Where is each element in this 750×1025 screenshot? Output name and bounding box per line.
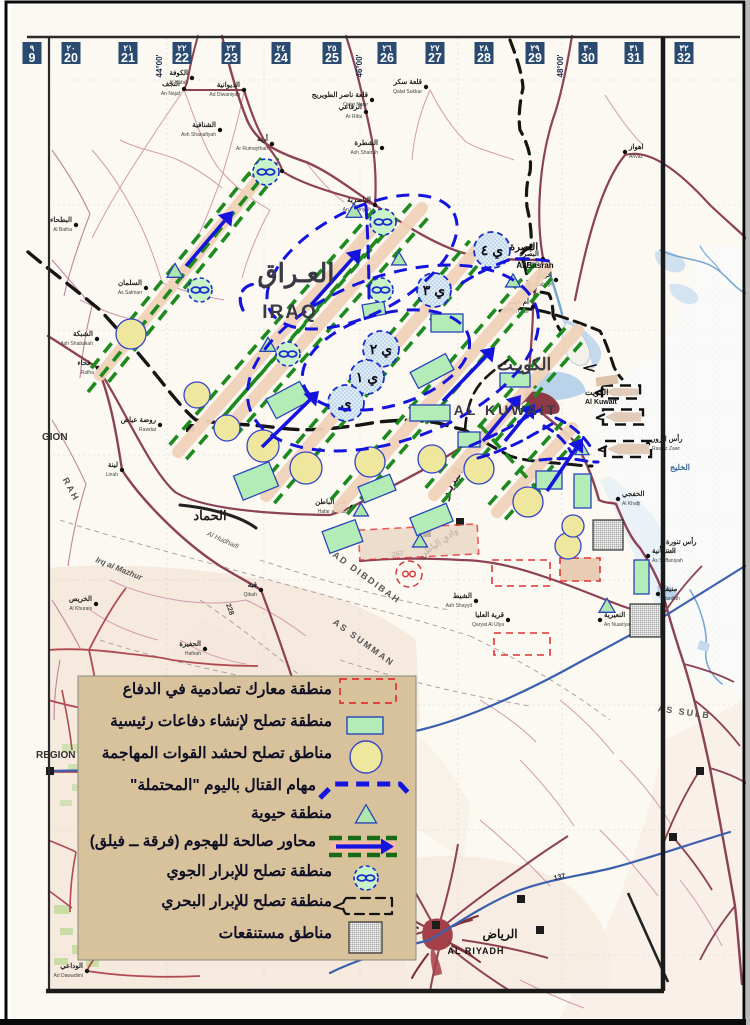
- svg-text:الخليج: الخليج: [670, 463, 690, 473]
- svg-text:Qalat Nasir: Qalat Nasir: [343, 102, 368, 108]
- svg-text:Al Basrah: Al Basrah: [516, 261, 553, 270]
- svg-text:Ash Shabakah: Ash Shabakah: [60, 341, 93, 347]
- svg-text:Al Kufah: Al Kufah: [169, 80, 188, 86]
- svg-text:منطقة تصلح للإبرار البحري: منطقة تصلح للإبرار البحري: [161, 893, 332, 911]
- svg-text:48°00': 48°00': [556, 54, 565, 77]
- svg-text:Ash Shatrah: Ash Shatrah: [350, 150, 378, 156]
- svg-text:Qibah: Qibah: [244, 592, 258, 598]
- svg-text:As Saffaniyah: As Saffaniyah: [652, 558, 683, 564]
- svg-text:الشيط: الشيط: [453, 592, 472, 600]
- svg-text:23: 23: [224, 51, 238, 65]
- svg-text:ي ٢: ي ٢: [370, 341, 392, 358]
- svg-text:ي ٣: ي ٣: [423, 282, 445, 299]
- svg-text:Rawdat: Rawdat: [139, 427, 157, 433]
- svg-text:Ash Shanafiyah: Ash Shanafiyah: [181, 132, 216, 138]
- svg-text:AL KUWAIT: AL KUWAIT: [454, 402, 559, 418]
- svg-text:Al Khurais: Al Khurais: [69, 606, 92, 612]
- svg-text:الحفيرة: الحفيرة: [179, 640, 201, 648]
- svg-text:Ar Rumaythah: Ar Rumaythah: [236, 146, 268, 152]
- svg-text:22: 22: [175, 51, 189, 65]
- svg-text:الخريص: الخريص: [69, 595, 92, 603]
- svg-text:قلعة سكر: قلعة سكر: [393, 78, 422, 86]
- svg-text:الديوانية: الديوانية: [217, 81, 240, 89]
- svg-text:الشبكة: الشبكة: [73, 330, 93, 338]
- svg-text:منطقة معارك تصادمية في الدفاع: منطقة معارك تصادمية في الدفاع: [123, 681, 332, 699]
- svg-text:31: 31: [627, 51, 641, 65]
- svg-text:روضة عياض: روضة عياض: [121, 416, 157, 424]
- svg-text:Ar Rifai: Ar Rifai: [346, 114, 362, 120]
- svg-text:قرية العليا: قرية العليا: [475, 611, 504, 619]
- svg-text:منطقة تصلح للإبرار الجوي: منطقة تصلح للإبرار الجوي: [167, 863, 332, 881]
- svg-text:Ras az Zawr: Ras az Zawr: [652, 446, 680, 452]
- svg-text:IRAQ: IRAQ: [262, 302, 318, 323]
- svg-text:As Salman: As Salman: [118, 290, 142, 296]
- svg-text:46°00': 46°00': [355, 54, 364, 77]
- svg-text:اهواز: اهواز: [628, 143, 644, 151]
- svg-text:مناطق مستنقعات: مناطق مستنقعات: [219, 925, 332, 943]
- svg-text:REGION: REGION: [36, 750, 75, 761]
- svg-text:قلعة ناصر الطويريج: قلعة ناصر الطويريج: [312, 91, 368, 99]
- svg-text:الشنافية: الشنافية: [192, 121, 216, 129]
- svg-text:مناطق تصلح لحشد القوات المهاجم: مناطق تصلح لحشد القوات المهاجمة: [102, 745, 332, 763]
- svg-text:27: 27: [428, 51, 442, 65]
- svg-text:Al Kuwait: Al Kuwait: [585, 399, 618, 406]
- svg-text:العـراق: العـراق: [257, 258, 334, 289]
- svg-text:An Nuairiyah: An Nuairiyah: [604, 622, 633, 628]
- svg-text:28: 28: [477, 51, 491, 65]
- svg-text:Ad Dawadimi: Ad Dawadimi: [54, 973, 83, 979]
- svg-text:مهام القتال باليوم "المحتملة": مهام القتال باليوم "المحتملة": [130, 777, 316, 795]
- svg-text:ي ٤: ي ٤: [481, 242, 503, 259]
- svg-text:Qaryat Al Ulya: Qaryat Al Ulya: [472, 622, 504, 628]
- svg-text:Ras: Ras: [666, 549, 675, 555]
- svg-text:الكويـت: الكويـت: [497, 355, 551, 375]
- svg-text:An Najaf: An Najaf: [161, 91, 181, 97]
- svg-text:البطحاء: البطحاء: [50, 216, 72, 224]
- svg-text:Ahvaz: Ahvaz: [629, 154, 643, 160]
- svg-text:Rafha: Rafha: [81, 370, 95, 376]
- svg-text:الكوفة: الكوفة: [169, 69, 188, 77]
- svg-text:السلمان: السلمان: [118, 279, 142, 287]
- svg-text:20: 20: [64, 51, 78, 65]
- svg-text:AL RIYADH: AL RIYADH: [447, 946, 504, 956]
- svg-text:قبة: قبة: [248, 582, 257, 589]
- svg-text:Al Batha: Al Batha: [53, 227, 72, 233]
- svg-text:Hafirah: Hafirah: [185, 651, 201, 657]
- svg-text:44°00': 44°00': [155, 54, 164, 77]
- svg-text:منطقة تصلح لإنشاء دفاعات رئيسي: منطقة تصلح لإنشاء دفاعات رئيسية: [110, 713, 332, 731]
- svg-text:الناصرية: الناصرية: [347, 196, 371, 204]
- svg-text:21: 21: [121, 51, 135, 65]
- svg-text:Ash Shayyit: Ash Shayyit: [446, 603, 473, 609]
- svg-text:29: 29: [528, 51, 542, 65]
- svg-text:GION: GION: [42, 432, 68, 443]
- svg-text:البصرة: البصرة: [510, 242, 538, 253]
- svg-text:Linah: Linah: [106, 472, 118, 478]
- svg-text:32: 32: [677, 51, 691, 65]
- svg-text:الخفجي: الخفجي: [622, 490, 645, 499]
- svg-text:محاور صالحة للهجوم (فرقة ــ في: محاور صالحة للهجوم (فرقة ــ فيلق): [90, 833, 316, 851]
- svg-text:لينة: لينة: [108, 461, 118, 469]
- svg-text:Qalat Sukkar: Qalat Sukkar: [393, 89, 422, 95]
- svg-text:9: 9: [29, 51, 36, 65]
- svg-text:Ad Diwaniyah: Ad Diwaniyah: [209, 92, 240, 98]
- svg-text:Al Khafji: Al Khafji: [622, 501, 640, 507]
- svg-text:الشطرة: الشطرة: [354, 139, 378, 147]
- svg-text:24: 24: [274, 51, 288, 65]
- svg-text:منطقة حيوية: منطقة حيوية: [251, 805, 332, 823]
- svg-text:الكويت: الكويت: [585, 388, 608, 398]
- svg-text:الوداعي: الوداعي: [60, 962, 83, 971]
- svg-text:ي ١: ي ١: [356, 369, 378, 386]
- svg-text:الرياض: الرياض: [482, 927, 517, 942]
- svg-text:25: 25: [325, 51, 339, 65]
- svg-text:30: 30: [581, 51, 595, 65]
- svg-text:26: 26: [380, 51, 394, 65]
